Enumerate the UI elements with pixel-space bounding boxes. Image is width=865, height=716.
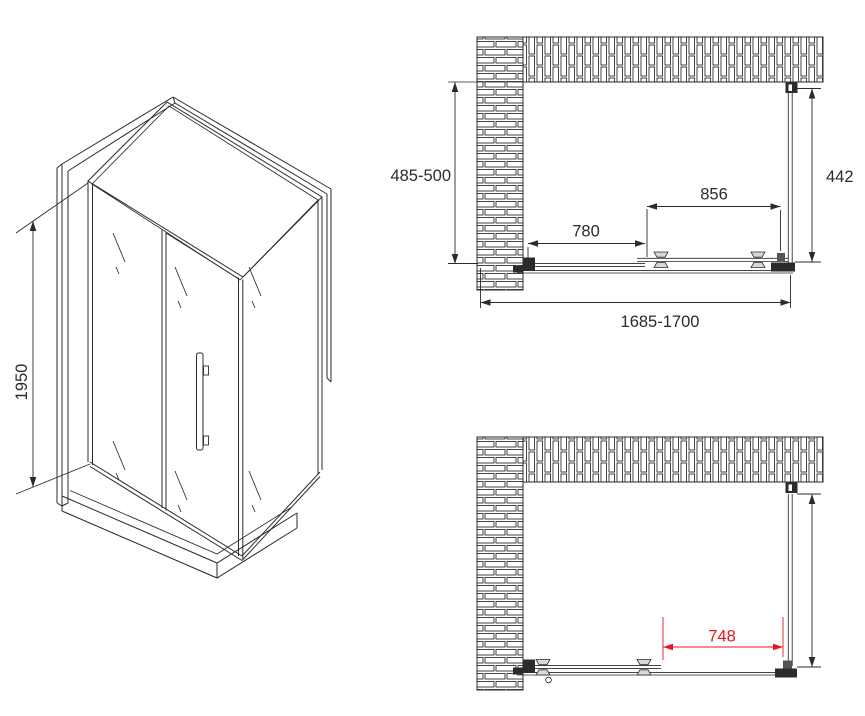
side-panel-open <box>786 482 798 666</box>
side-bottom-rail <box>242 472 320 561</box>
roller-icon <box>637 660 651 676</box>
brick-wall-left <box>477 437 523 690</box>
side-panel-closed <box>786 82 798 263</box>
dim-extension-lines <box>16 183 90 494</box>
roller-icon <box>654 252 668 268</box>
fixed-glass-dim-label: 780 <box>572 223 600 241</box>
handle-mount-top <box>204 366 209 375</box>
brick-wall-top <box>523 37 823 82</box>
door-end-cap <box>777 253 785 261</box>
door-glass <box>637 258 788 261</box>
handle-mount-bottom <box>204 436 209 445</box>
dim-depth: 485-500 <box>390 82 478 264</box>
plan-view-open: 748 <box>477 437 823 690</box>
left-wall-top-edge <box>62 97 175 171</box>
opening-dim-label: 748 <box>708 628 736 646</box>
dim-fixed-glass: 780 <box>528 223 645 269</box>
plan-view-closed: 485-500 442 856 780 1685-170 <box>390 37 853 331</box>
wall-profile-left <box>523 258 535 271</box>
track-rail <box>517 673 793 675</box>
dim-side-panel: 442 <box>795 89 854 263</box>
door-glass-open <box>523 666 661 669</box>
height-dim-label: 1950 <box>13 364 31 401</box>
handle-bar <box>197 353 204 450</box>
door-handle <box>197 353 209 450</box>
front-right-post <box>239 278 243 560</box>
roller-icon <box>536 660 550 676</box>
wall-profile-left <box>523 660 535 673</box>
front-left-post <box>88 181 93 465</box>
corner-bracket <box>775 669 797 678</box>
back-right-post <box>318 198 322 474</box>
door-glass-dim-label: 856 <box>700 186 728 204</box>
enclosure-frame <box>88 102 322 561</box>
door-stopper <box>546 677 552 683</box>
track-rail <box>517 271 793 273</box>
dim-height: 1950 <box>13 183 90 494</box>
technical-drawing-canvas: 1950 <box>0 0 865 716</box>
shower-enclosure-drawing: 1950 <box>0 0 865 716</box>
left-wall <box>57 164 68 506</box>
brick-wall-left <box>477 37 523 290</box>
slider-assembly-open <box>513 660 797 683</box>
fixed-glass <box>535 264 645 267</box>
side-panel-dim-label: 442 <box>826 168 854 186</box>
walls-open <box>477 437 823 690</box>
right-wall <box>173 97 331 382</box>
roller-icon <box>751 252 765 268</box>
dim-door-glass: 856 <box>647 186 781 258</box>
door-end-cap <box>783 661 792 669</box>
corner-walls <box>57 97 331 506</box>
isometric-view: 1950 <box>13 97 331 578</box>
brick-wall-top <box>523 437 823 482</box>
corner-bracket <box>771 263 795 272</box>
total-width-dim-label: 1685-1700 <box>621 313 700 331</box>
dim-opening: 748 <box>663 617 783 660</box>
walls-closed <box>448 37 823 290</box>
dim-total-width: 1685-1700 <box>481 268 791 331</box>
dim-side-reference <box>797 494 821 667</box>
depth-dim-label: 485-500 <box>390 167 451 185</box>
slider-assembly-closed <box>513 252 795 273</box>
middle-post <box>162 230 166 511</box>
